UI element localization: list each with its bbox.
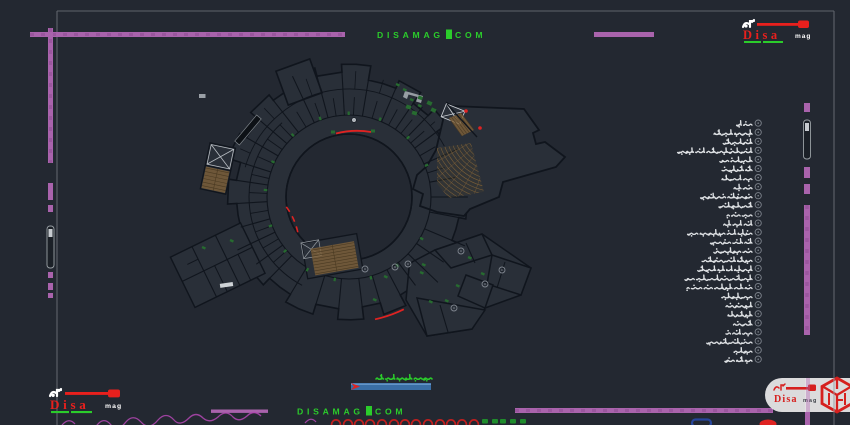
svg-text:DISAMAG: DISAMAG xyxy=(377,30,444,40)
svg-text:COM: COM xyxy=(455,30,486,40)
svg-text:mag: mag xyxy=(803,398,817,404)
svg-text:Disa: Disa xyxy=(50,397,90,412)
svg-text:COM: COM xyxy=(375,407,406,417)
svg-text:DISAMAG: DISAMAG xyxy=(297,407,364,417)
svg-text:mag: mag xyxy=(795,33,811,40)
svg-text:Disa: Disa xyxy=(774,394,798,405)
svg-text:mag: mag xyxy=(105,403,122,410)
svg-text:Disa: Disa xyxy=(743,28,781,42)
